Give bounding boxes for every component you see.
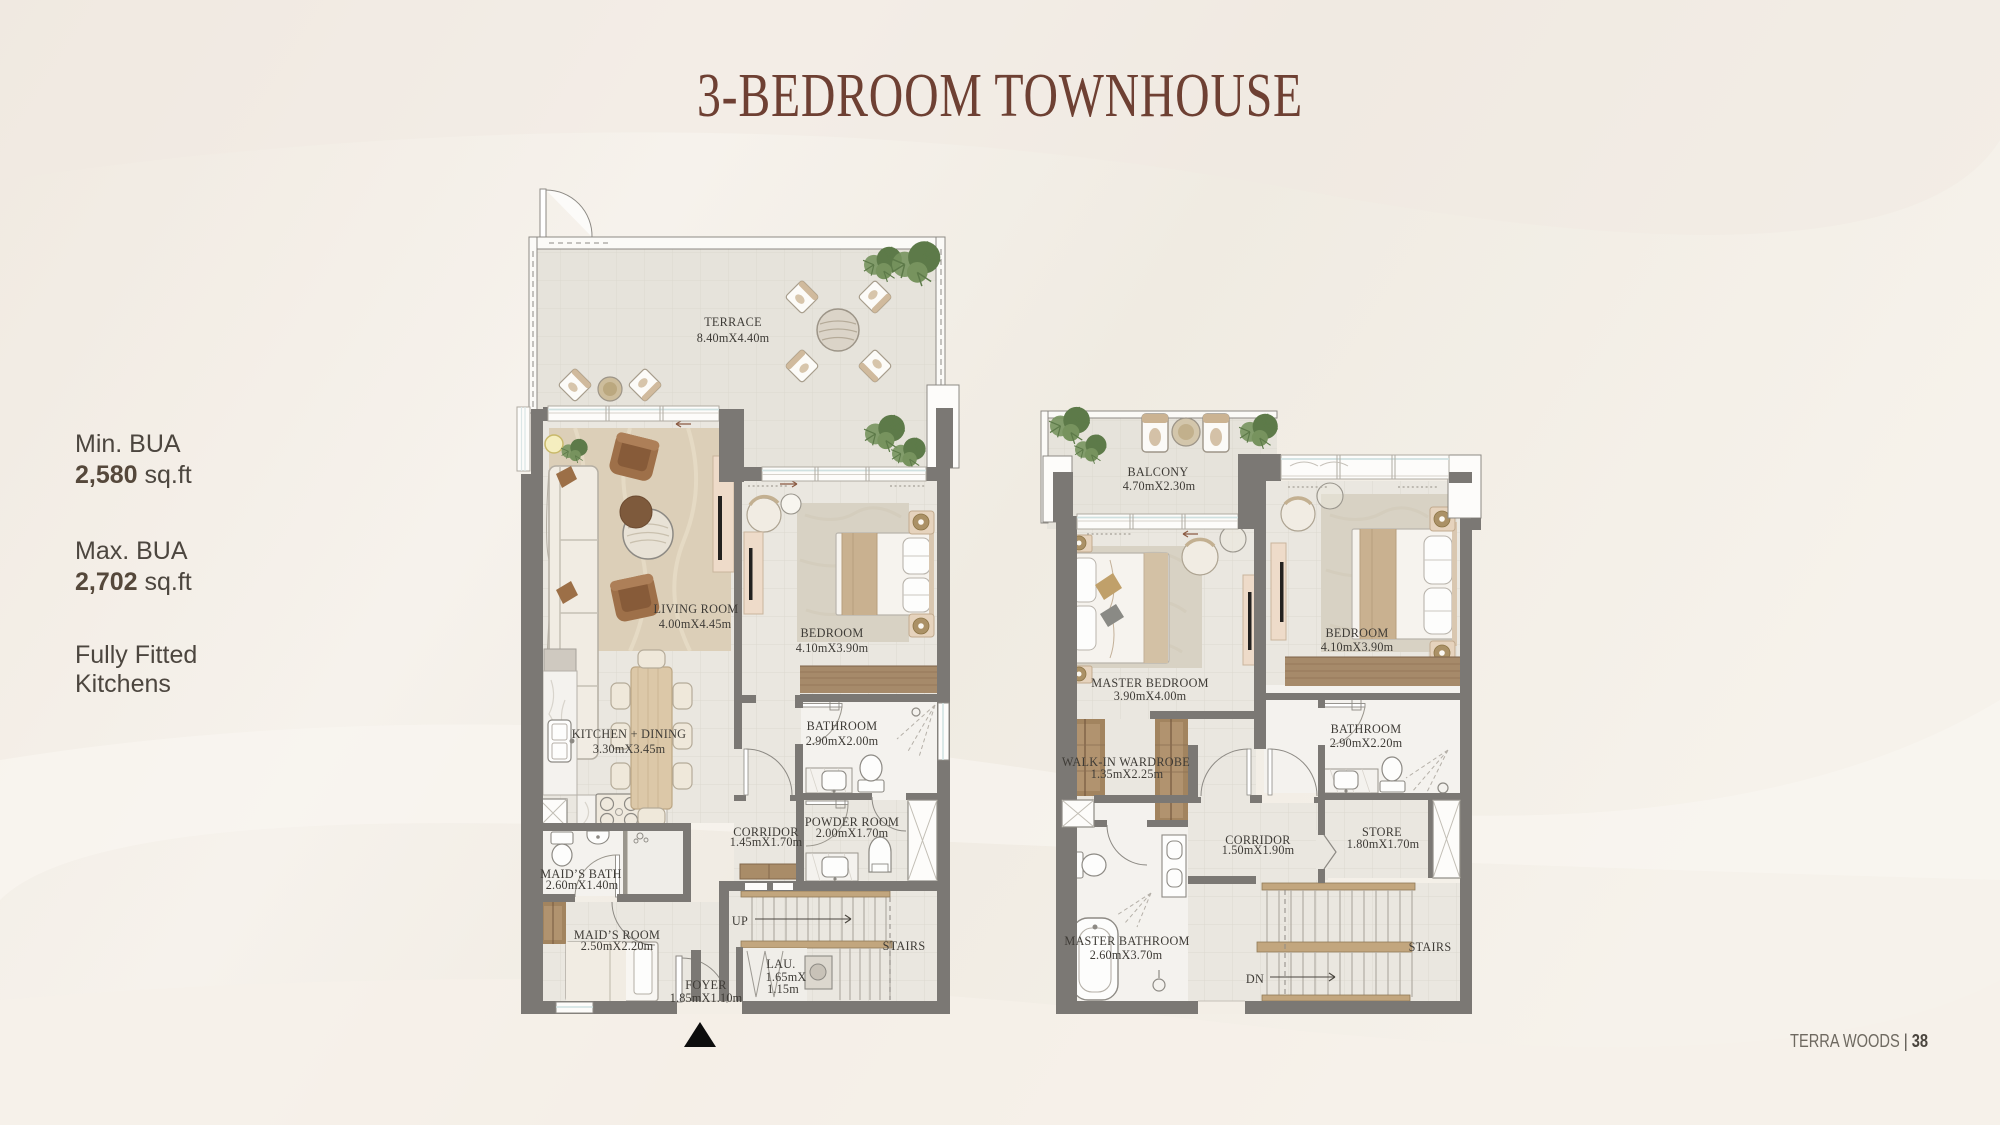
svg-text:BEDROOM: BEDROOM [800,626,863,640]
svg-text:TERRA WOODS | 38: TERRA WOODS | 38 [1790,1031,1928,1051]
svg-text:BALCONY: BALCONY [1127,465,1188,479]
svg-text:2,702 sq.ft: 2,702 sq.ft [75,568,192,596]
svg-text:LIVING ROOM: LIVING ROOM [654,602,739,616]
svg-text:STAIRS: STAIRS [883,939,926,953]
svg-text:2.50mX2.20m: 2.50mX2.20m [581,939,654,953]
svg-text:Min. BUA: Min. BUA [75,430,181,458]
svg-text:FOYER: FOYER [685,978,727,992]
svg-text:1.80mX1.70m: 1.80mX1.70m [1347,837,1420,851]
svg-text:2.00mX1.70m: 2.00mX1.70m [816,826,889,840]
svg-text:MASTER BEDROOM: MASTER BEDROOM [1091,676,1209,690]
svg-text:2.60mX3.70m: 2.60mX3.70m [1090,948,1163,962]
svg-text:KITCHEN + DINING: KITCHEN + DINING [572,727,687,741]
svg-text:1.15m: 1.15m [767,982,799,996]
svg-text:STAIRS: STAIRS [1409,940,1452,954]
svg-text:4.10mX3.90m: 4.10mX3.90m [796,641,869,655]
svg-text:1.50mX1.90m: 1.50mX1.90m [1222,843,1295,857]
svg-text:4.00mX4.45m: 4.00mX4.45m [659,617,732,631]
svg-text:Fully Fitted: Fully Fitted [75,641,197,669]
svg-text:MASTER BATHROOM: MASTER BATHROOM [1064,934,1189,948]
svg-text:3.90mX4.00m: 3.90mX4.00m [1114,689,1187,703]
svg-text:DN: DN [1246,972,1264,986]
svg-text:2,580 sq.ft: 2,580 sq.ft [75,461,192,489]
svg-text:2.90mX2.20m: 2.90mX2.20m [1330,736,1403,750]
svg-text:BATHROOM: BATHROOM [1331,722,1402,736]
svg-text:8.40mX4.40m: 8.40mX4.40m [697,331,770,345]
svg-text:2.60mX1.40m: 2.60mX1.40m [546,878,619,892]
svg-text:3.30mX3.45m: 3.30mX3.45m [593,742,666,756]
svg-text:TERRACE: TERRACE [704,315,762,329]
svg-text:Kitchens: Kitchens [75,670,171,698]
svg-text:4.10mX3.90m: 4.10mX3.90m [1321,640,1394,654]
svg-text:1.35mX2.25m: 1.35mX2.25m [1091,767,1164,781]
svg-text:3-BEDROOM TOWNHOUSE: 3-BEDROOM TOWNHOUSE [697,62,1303,130]
svg-text:1.45mX1.70m: 1.45mX1.70m [730,835,803,849]
svg-text:2.90mX2.00m: 2.90mX2.00m [806,734,879,748]
svg-text:UP: UP [732,914,748,928]
svg-text:1.85mX1.10m: 1.85mX1.10m [670,991,743,1005]
svg-text:BATHROOM: BATHROOM [807,719,878,733]
svg-text:4.70mX2.30m: 4.70mX2.30m [1123,479,1196,493]
svg-text:LAU.: LAU. [766,957,795,971]
svg-text:BEDROOM: BEDROOM [1325,626,1388,640]
svg-text:Max. BUA: Max. BUA [75,537,188,565]
